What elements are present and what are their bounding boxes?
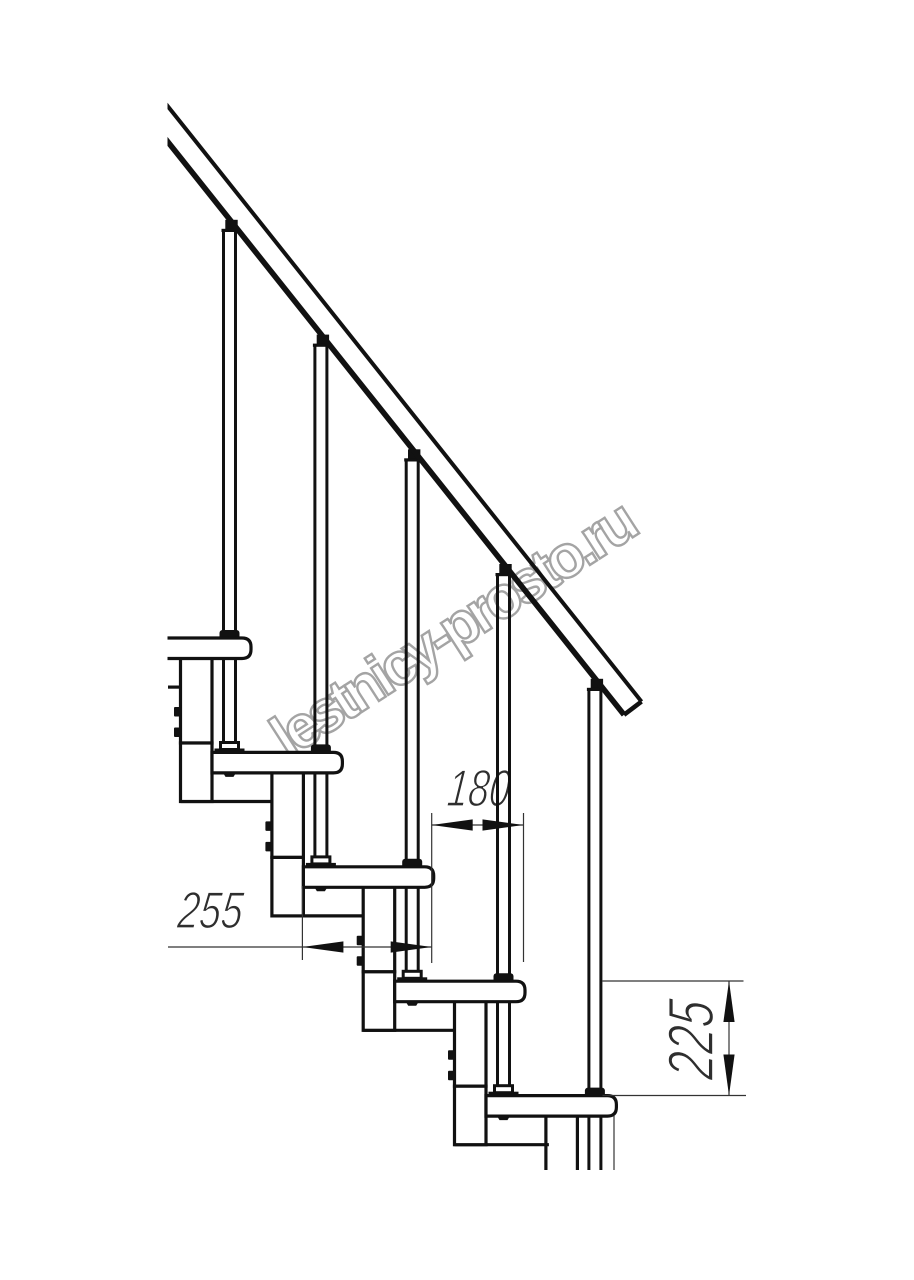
svg-text:225: 225 [655,996,727,1083]
svg-text:255: 255 [174,881,246,940]
svg-text:180: 180 [445,759,514,817]
